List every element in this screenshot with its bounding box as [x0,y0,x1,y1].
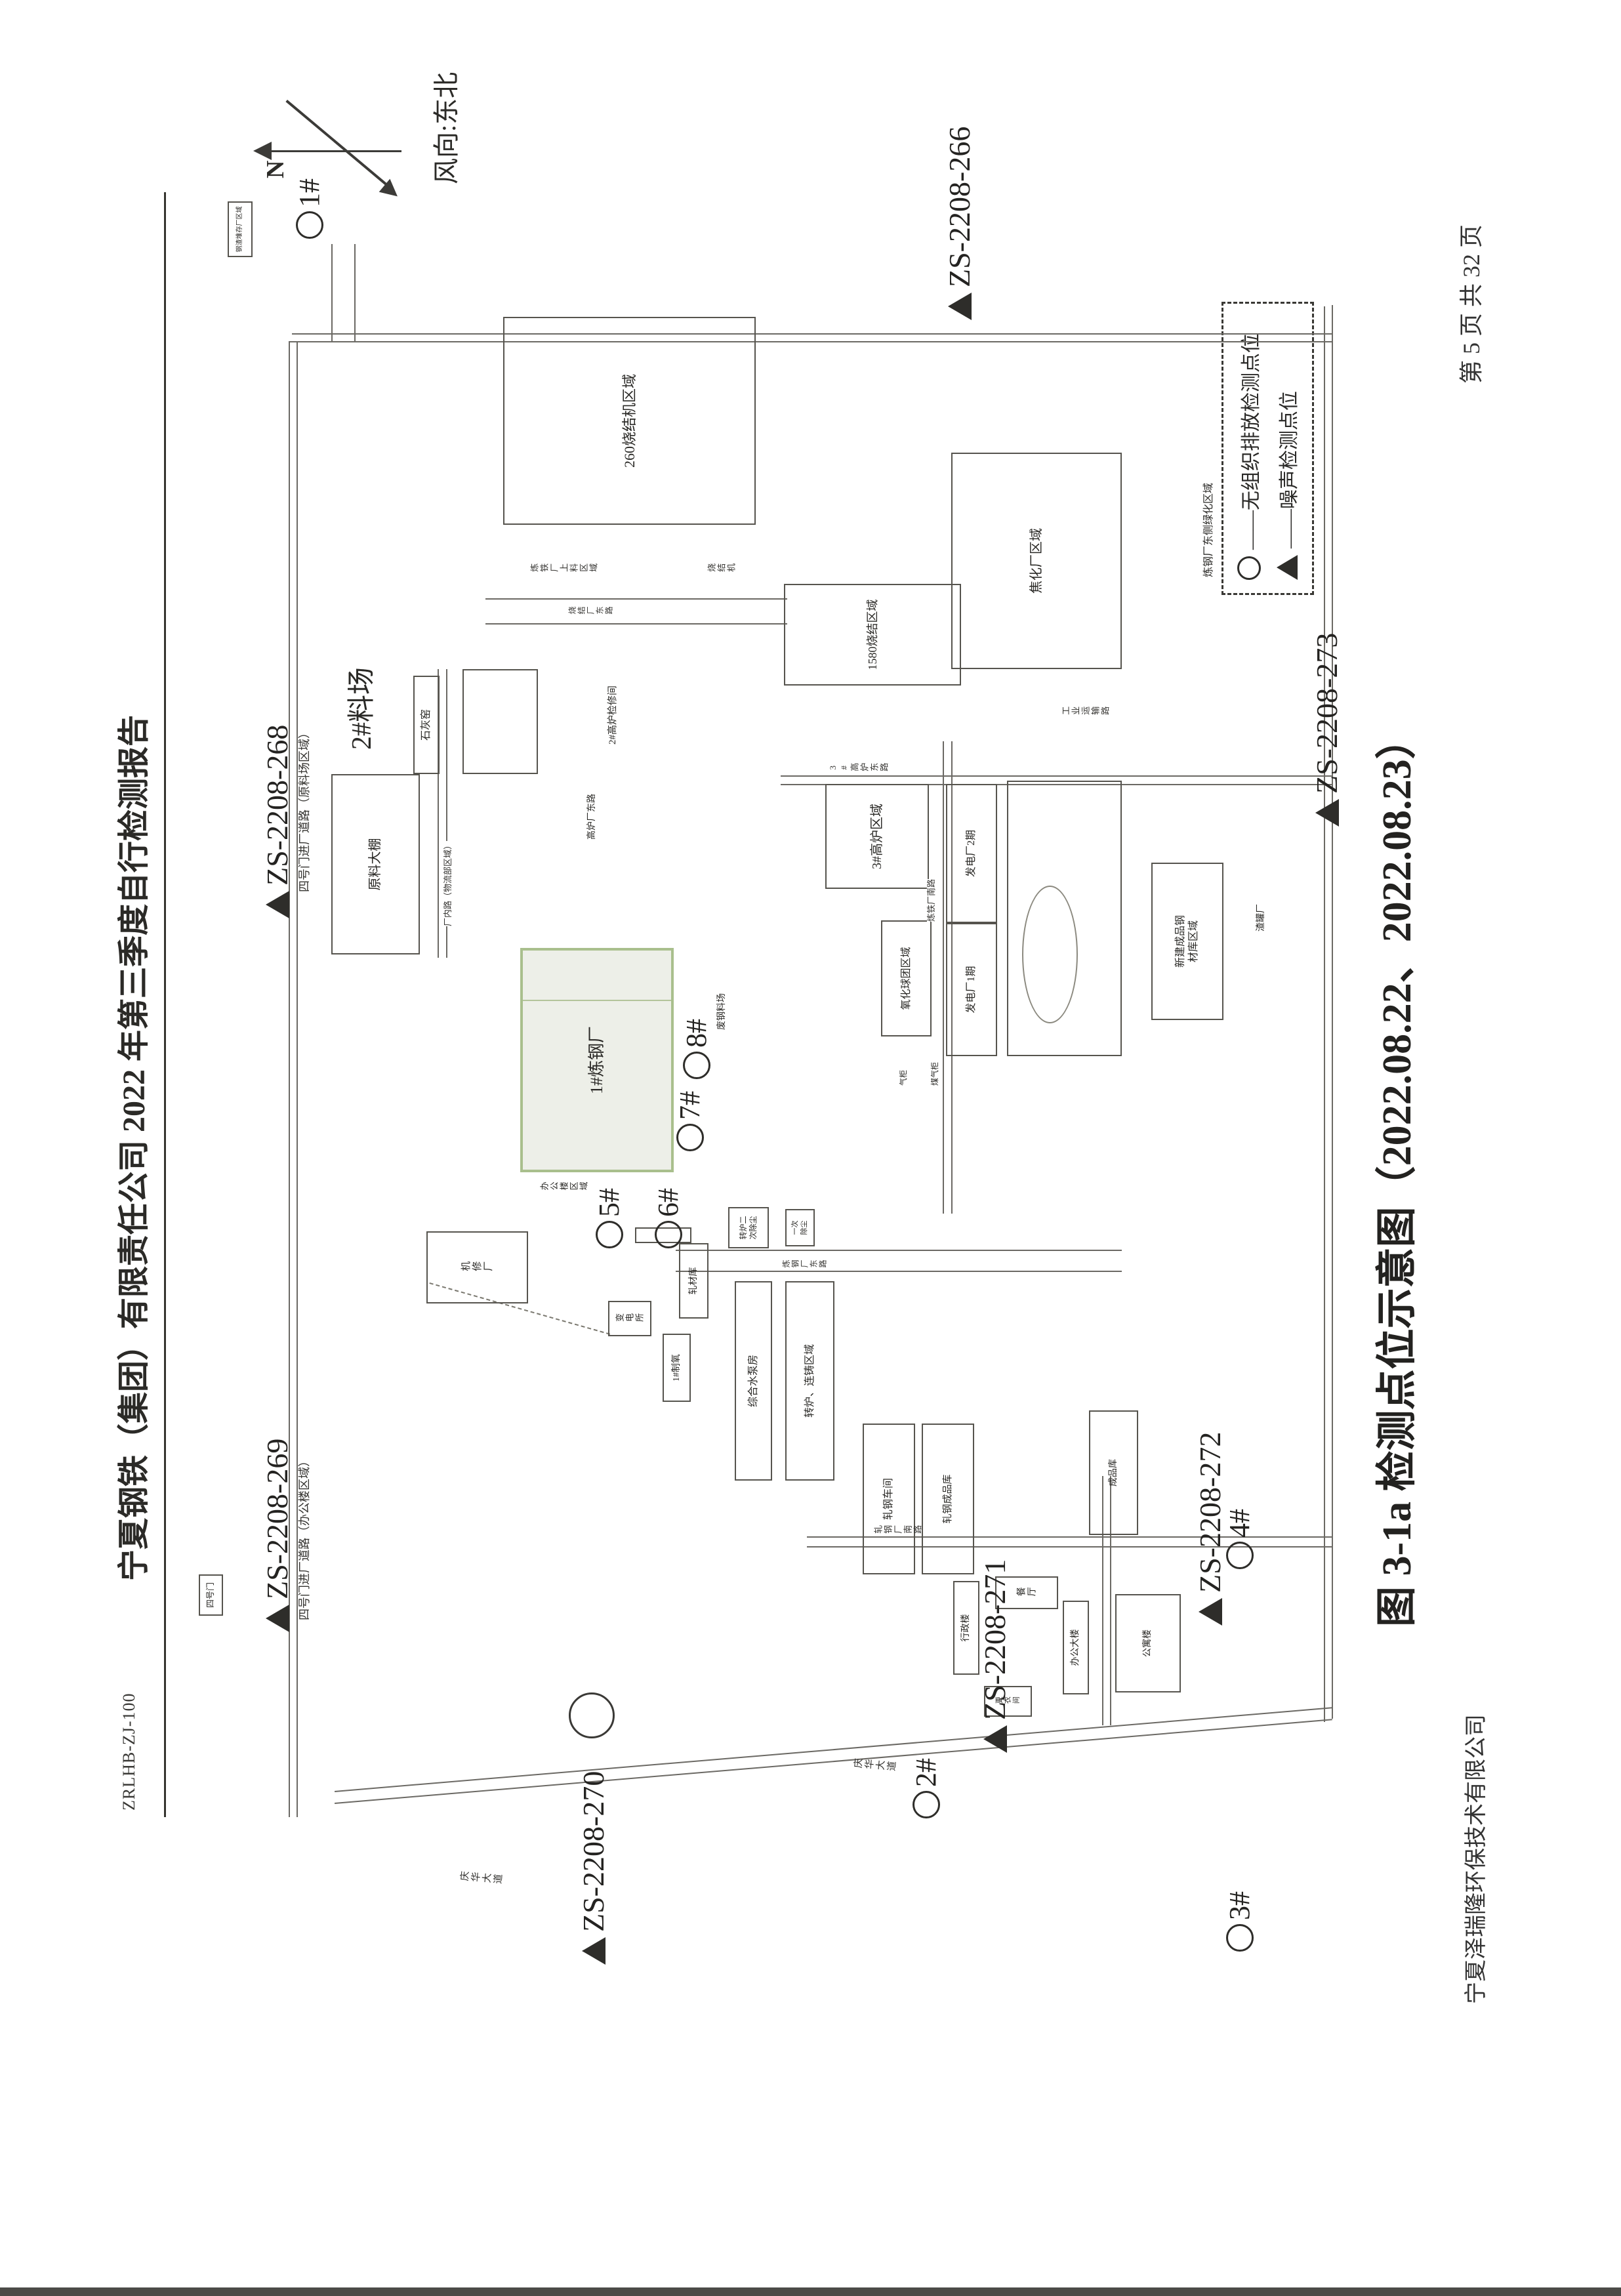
emission-point-label: 4# [1223,1509,1256,1538]
building-label: 轧钢车间 [882,1478,895,1520]
noise-point-marker: ZS-2208-268 [260,725,295,918]
building-box: 成品库 [1089,1410,1138,1535]
road-line [335,1707,1332,1792]
building-label: 综合水泵房 [747,1355,760,1407]
road-line [354,244,356,341]
emission-point-label: 7# [673,1091,707,1120]
building-box: 1#制氧 [663,1334,691,1402]
building-label: 四号门 [205,1582,216,1608]
circle-marker-icon [655,1221,682,1248]
circle-marker-icon [683,1052,710,1079]
circle-marker-icon [676,1124,704,1151]
area-label: 2#高炉检修间 [607,686,619,745]
building-box: 石灰窑 [413,676,440,774]
triangle-marker-icon [1199,1598,1222,1626]
building-box: 发电厂1期 [946,923,997,1056]
gate-circle [569,1692,615,1738]
road-label: 工业运输路 [1061,707,1111,716]
building-box: 一次 除尘 [785,1209,815,1246]
building-box: 1#炼钢厂 [520,948,674,1172]
road-label: 炼铁厂上料区域 [530,564,599,573]
building-box: 钢渣堆存厂区域 [228,201,253,257]
area-label: 2#料场 [346,667,379,750]
noise-point-marker: ZS-2208-273 [1309,633,1344,827]
emission-point-label: 5# [592,1188,626,1217]
road-line [331,244,333,341]
building-box: 四号门 [199,1574,223,1616]
building-label: 轧材库 [688,1267,700,1295]
emission-point-label: 6# [651,1188,685,1217]
building-box: 轧钢车间 [863,1424,915,1574]
emission-point-marker: 2# [909,1758,943,1818]
noise-point-label: ZS-2208-273 [1309,633,1344,794]
green-box-divider [523,1000,671,1001]
road-line [676,1271,1122,1272]
building-label: 发电厂2期 [965,830,978,877]
building-label: 1#制氧 [671,1354,683,1382]
emission-point-label: 2# [909,1758,943,1787]
emission-point-marker: 5# [592,1188,626,1248]
triangle-marker-icon [948,293,972,320]
circle-marker-icon [913,1791,940,1818]
noise-point-label: ZS-2208-266 [942,127,977,287]
road-line [1332,305,1333,1719]
road-line [292,333,1332,335]
building-label: 1#炼钢厂 [586,1026,608,1094]
area-label: 废钢料场 [717,993,728,1030]
pond-ellipse [1022,886,1078,1023]
building-label: 发电厂1期 [965,966,978,1014]
noise-point-marker: ZS-2208-270 [576,1771,611,1965]
building-label: 新建成品钢 材库区域 [1174,915,1200,968]
building-label: 办公大楼 [1070,1630,1082,1666]
road-label: 厂内路（物流部区域） [443,841,453,926]
building-box: 焦化厂区域 [951,453,1122,669]
building-label: 成品库 [1108,1459,1120,1486]
emission-point-marker: 7# [673,1091,707,1151]
road-label: 四号门进厂道路（原料场区域） [298,727,312,892]
area-label: 办公楼区域 [540,1181,589,1192]
building-box: 3#高炉区域 [825,784,929,889]
building-box: 轧钢成品库 [922,1424,974,1574]
road-label: 炼钢厂东路 [782,1260,828,1269]
road-line [485,598,787,600]
building-label: 3#高炉区域 [869,804,886,869]
triangle-marker-icon [582,1937,605,1965]
building-label: 焦化厂区域 [1029,528,1045,594]
circle-marker-icon [596,1221,623,1248]
building-label: 1580烧结区域 [865,600,880,670]
circle-marker-icon [296,211,323,239]
triangle-marker-icon [1315,799,1339,827]
building-box: 260烧结机区域 [503,317,756,525]
structure-box [462,669,538,774]
building-label: 机修厂 [461,1261,494,1274]
scan-edge-shadow [0,2287,1621,2296]
noise-point-marker: ZS-2208-269 [260,1439,295,1632]
road-line [676,1250,1122,1251]
building-label: 餐厅 [1016,1587,1037,1599]
triangle-marker-icon [266,891,289,918]
area-label: 气柜 [899,1070,908,1086]
emission-point-label: 1# [293,178,326,207]
building-label: 氧化球团区域 [900,947,913,1010]
building-label: 变电所 [615,1313,645,1324]
building-label: 转炉、连铸区域 [804,1344,817,1418]
building-box: 1580烧结区域 [784,584,961,686]
building-box: 机修厂 [426,1231,528,1303]
noise-point-label: ZS-2208-269 [260,1439,295,1599]
building-box: 转炉、连铸区域 [785,1281,834,1481]
building-box: 氧化球团区域 [881,920,932,1036]
building-label: 260烧结机区域 [621,374,639,468]
building-box: 公寓楼 [1115,1594,1181,1692]
building-box: 办公大楼 [1063,1601,1089,1694]
building-box: 变电所 [608,1301,651,1336]
noise-point-marker: ZS-2208-271 [977,1559,1012,1753]
emission-point-marker: 4# [1223,1509,1256,1569]
road-label: 四号门进厂道路（办公楼区域） [298,1455,312,1620]
building-label: 石灰窑 [420,709,433,741]
road-line [1324,306,1325,1722]
site-map: 钢渣堆存厂区域四号门原料大棚石灰窑260烧结机区域1580烧结区域3#高炉区域氧… [0,0,1621,2296]
circle-marker-icon [1226,1924,1254,1952]
building-box: 发电厂2期 [946,784,997,923]
emission-point-marker: 6# [651,1188,685,1248]
scanned-report-sheet: ZRLHB-ZJ-100 宁夏钢铁（集团）有限责任公司 2022 年第三季度自行… [0,0,1621,2296]
building-box: 综合水泵房 [735,1281,772,1481]
building-label: 原料大棚 [367,838,384,891]
area-label: 炼钢厂东侧绿化区域 [1202,483,1215,577]
building-label: 转炉二 次除尘 [739,1216,758,1240]
building-label: 公寓楼 [1142,1630,1154,1657]
building-label: 钢渣堆存厂区域 [236,207,245,253]
building-box: 原料大棚 [331,774,420,954]
road-label: 炼铁厂南路 [927,879,936,922]
road-line [781,775,1332,777]
building-label: 一次 除尘 [791,1221,810,1235]
noise-point-marker: ZS-2208-266 [942,127,977,320]
triangle-marker-icon [983,1725,1007,1753]
emission-point-label: 8# [680,1019,713,1048]
emission-point-label: 3# [1223,1891,1256,1920]
area-label: 高炉厂东路 [587,794,598,840]
building-label: 轧钢成品库 [942,1475,954,1524]
road-label: 3#高炉东路 [828,764,890,773]
road-line [943,741,944,1214]
triangle-marker-icon [266,1605,289,1632]
area-label: 渣罐厂 [1256,904,1267,932]
road-label: 庆华大道 [852,1759,897,1773]
building-label: 行政楼 [960,1614,972,1642]
noise-point-label: ZS-2208-270 [576,1771,611,1932]
noise-point-label: ZS-2208-271 [977,1559,1012,1720]
emission-point-marker: 1# [293,178,326,239]
road-label: 庆华大道 [459,1872,504,1886]
road-line [289,341,1332,342]
road-line [335,1719,1332,1804]
area-label: 煤气柜 [930,1062,939,1086]
building-box: 新建成品钢 材库区域 [1151,863,1223,1020]
road-label: 烧结厂东路 [568,607,614,615]
building-box: 转炉二 次除尘 [728,1207,769,1248]
building-box: 轧材库 [679,1243,708,1319]
circle-marker-icon [1226,1542,1254,1569]
road-label: 烧结机 [707,564,737,573]
emission-point-marker: 8# [680,1019,713,1079]
road-label: 轧钢厂南路 [874,1526,923,1535]
noise-point-label: ZS-2208-268 [260,725,295,886]
road-line [485,623,787,625]
emission-point-marker: 3# [1223,1891,1256,1952]
building-box: 行政楼 [953,1581,979,1675]
